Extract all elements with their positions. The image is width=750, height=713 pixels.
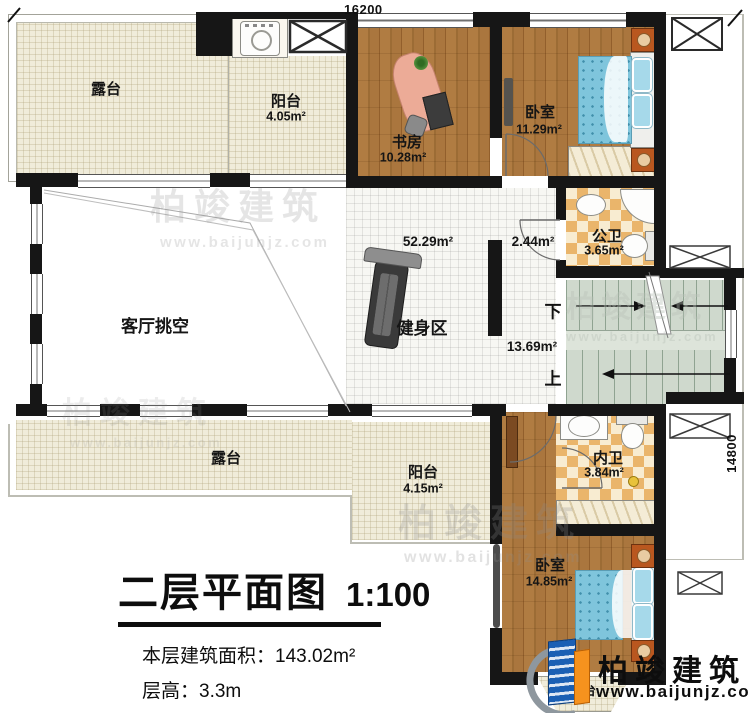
wall-segment <box>346 176 502 188</box>
wall-segment <box>548 176 556 188</box>
stair-flight-upper <box>566 280 736 330</box>
sink-icon <box>568 415 600 437</box>
window-segment <box>31 204 43 244</box>
wall-segment <box>548 404 666 416</box>
wall-segment <box>556 524 654 536</box>
floor-height-value: 3.3m <box>199 681 241 702</box>
window-segment <box>31 274 43 314</box>
room-label-terrace-top: 露台 <box>91 82 121 98</box>
pillow-icon <box>632 94 652 128</box>
room-label-terrace-bottom: 露台 <box>211 451 241 467</box>
pillow-icon <box>633 604 653 640</box>
wall-segment <box>30 176 42 204</box>
shaft-box-icon <box>670 246 730 268</box>
wall-segment <box>490 26 502 138</box>
stair-landing <box>566 330 736 352</box>
room-label-balcony-bottom: 阳台 <box>408 465 438 481</box>
room-label-study: 书房 <box>392 135 422 151</box>
tv-cabinet-icon <box>504 78 513 126</box>
window-segment <box>372 405 472 417</box>
washer-icon <box>240 21 280 56</box>
window-segment <box>78 174 210 188</box>
wall-segment <box>16 404 47 416</box>
plan-scale: 1:100 <box>346 576 430 614</box>
wall-segment <box>556 266 666 278</box>
wall-segment <box>100 404 140 416</box>
pillow-icon <box>632 58 652 92</box>
room-label-gym: 健身区 <box>397 320 448 338</box>
window-segment <box>250 174 346 188</box>
quilt-icon <box>612 570 634 638</box>
title-block: 二层平面图 1:100 本层建筑面积：143.02m² 层高：3.3m <box>118 560 430 703</box>
washer-controls-icon <box>245 24 273 27</box>
wall-segment <box>473 12 530 27</box>
room-area-bath-public: 3.65m² <box>584 244 624 257</box>
room-area-balcony-bottom: 4.15m² <box>403 482 443 495</box>
window-segment <box>725 310 737 358</box>
treadmill-icon <box>345 245 430 356</box>
logo-building-icon <box>548 639 576 706</box>
toilet-icon <box>621 234 648 258</box>
parapet-line <box>8 424 10 496</box>
window-segment <box>47 405 100 417</box>
floor-area-label: 本层建筑面积： <box>142 646 275 667</box>
dimension-tick <box>728 10 742 26</box>
parapet-line <box>350 542 500 544</box>
room-living-void <box>42 188 346 404</box>
brand-logo: 柏竣建筑 www.baijunjz.com <box>512 638 750 710</box>
shaft-box-icon <box>670 414 730 438</box>
room-terrace-bottom <box>16 420 352 490</box>
room-area-bath-ensuite: 3.84m² <box>584 466 624 479</box>
window-segment <box>31 344 43 384</box>
wall-segment <box>346 404 372 416</box>
room-area-bedroom-bottom: 14.85m² <box>526 575 573 588</box>
sink-icon <box>576 194 606 216</box>
room-area-bedroom-top: 11.29m² <box>516 123 562 136</box>
wall-segment <box>488 240 502 336</box>
room-label-living-void: 客厅挑空 <box>121 318 189 336</box>
toilet-icon <box>621 423 644 449</box>
wall-segment <box>654 12 666 268</box>
window-segment <box>530 13 626 28</box>
title-underline <box>118 622 381 627</box>
shaft-box-icon <box>672 18 722 50</box>
room-area-balcony-top: 4.05m² <box>266 110 306 123</box>
floor-area-value: 143.02m² <box>275 646 355 667</box>
shaft-box-icon <box>290 21 346 52</box>
room-area-corridor: 2.44m² <box>512 235 555 249</box>
wall-segment <box>724 278 736 310</box>
window-segment <box>140 405 192 417</box>
parapet-line <box>8 495 352 497</box>
shaft-box-icon <box>678 572 722 594</box>
room-label-bedroom-bottom: 卧室 <box>535 558 565 574</box>
wall-segment <box>346 12 358 188</box>
wall-segment <box>196 12 232 56</box>
room-label-balcony-top: 阳台 <box>271 94 301 110</box>
room-label-bedroom-top: 卧室 <box>525 105 555 121</box>
stair-up-label: 上 <box>545 365 562 390</box>
door-leaf <box>506 416 518 468</box>
bay-curtain <box>493 544 500 628</box>
site-boundary <box>666 14 744 15</box>
wall-segment <box>30 244 42 274</box>
wall-segment <box>16 173 78 187</box>
site-boundary <box>666 559 744 560</box>
pillow-icon <box>633 568 653 604</box>
dimension-right: 14800 <box>724 434 739 473</box>
dimension-top: 16200 <box>344 2 383 17</box>
quilt-icon <box>604 56 628 142</box>
room-area-stairwell: 13.69m² <box>507 340 557 354</box>
wall-segment <box>666 392 744 404</box>
wall-segment <box>490 404 502 544</box>
site-boundary <box>742 14 744 560</box>
wall-segment <box>192 404 247 416</box>
wall-segment <box>228 12 352 19</box>
floor-drain-icon <box>628 476 639 487</box>
washer-drum-icon <box>251 30 272 51</box>
wall-segment <box>556 176 666 188</box>
wall-segment <box>666 268 744 278</box>
wall-segment <box>30 314 42 344</box>
wall-segment <box>210 173 250 187</box>
stair-down-label: 下 <box>545 298 562 323</box>
plant-icon <box>414 56 428 70</box>
floorplan-canvas: 露台 阳台 4.05m² 书房 10.28m² 卧室 11.29m² 公卫 3.… <box>0 0 750 713</box>
parapet-line <box>350 495 352 543</box>
room-area-hall: 52.29m² <box>403 235 453 249</box>
logo-building-icon <box>574 649 590 705</box>
room-area-study: 10.28m² <box>380 151 427 164</box>
plan-title: 二层平面图 <box>118 560 328 618</box>
floor-height-label: 层高： <box>142 681 199 702</box>
logo-website-text: www.baijunjz.com <box>596 682 750 702</box>
wall-segment <box>556 186 566 220</box>
window-segment <box>247 405 328 417</box>
